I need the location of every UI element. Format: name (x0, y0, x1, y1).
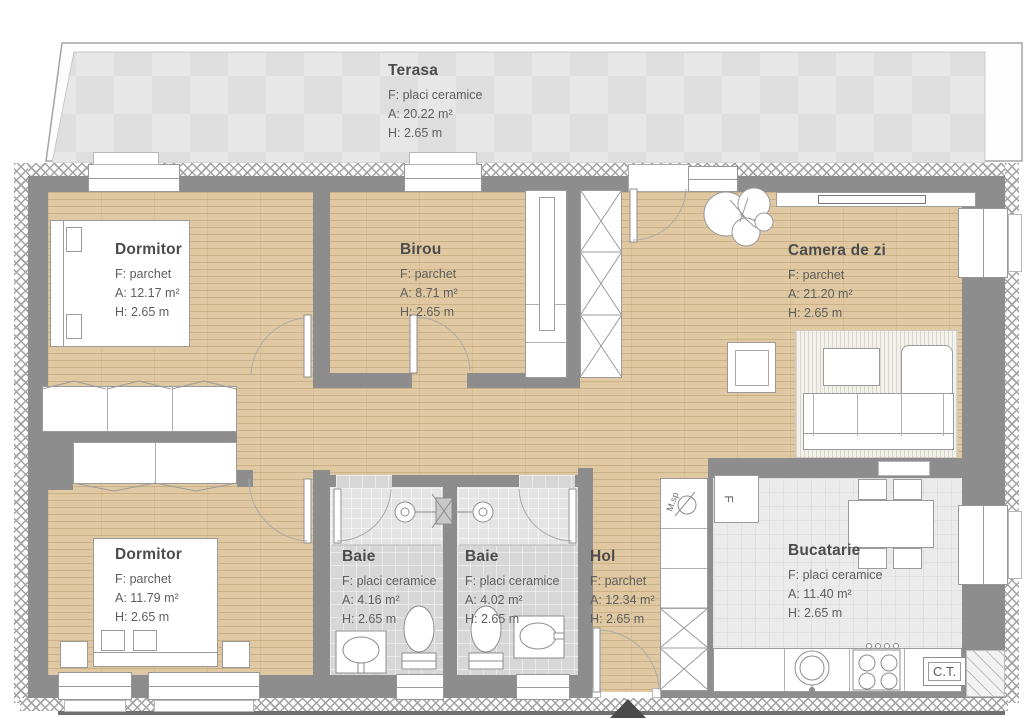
label-dormitor-2: Dormitor F: parchet A: 11.79 m² H: 2.65 … (115, 546, 182, 627)
room-name: Hol (590, 548, 655, 566)
door-entrance (593, 628, 659, 692)
label-camera-de-zi: Camera de zi F: parchet A: 21.20 m² H: 2… (788, 242, 886, 323)
boiler-label: C.T. (928, 662, 961, 681)
room-height: H: 2.65 m (388, 124, 482, 143)
room-name: Dormitor (115, 241, 182, 259)
label-birou: Birou F: parchet A: 8.71 m² H: 2.65 m (400, 241, 458, 322)
room-floor: F: parchet (115, 265, 182, 284)
door-baie1 (334, 489, 391, 543)
room-area: A: 11.79 m² (115, 589, 182, 608)
room-area: A: 21.20 m² (788, 285, 886, 304)
label-terasa: Terasa F: placi ceramice A: 20.22 m² H: … (388, 62, 482, 143)
room-floor: F: parchet (115, 570, 182, 589)
label-dormitor-1: Dormitor F: parchet A: 12.17 m² H: 2.65 … (115, 241, 182, 322)
room-height: H: 2.65 m (788, 604, 882, 623)
floor-plan: F C.T. (0, 0, 1028, 718)
kitchen-sink-icon (795, 651, 829, 693)
room-floor: F: parchet (788, 266, 886, 285)
sink-baie1-icon (336, 631, 386, 673)
room-area: A: 20.22 m² (388, 105, 482, 124)
room-height: H: 2.65 m (115, 303, 182, 322)
door-birou (410, 315, 470, 373)
door-baie2 (519, 489, 576, 543)
label-bucatarie: Bucatarie F: placi ceramice A: 11.40 m² … (788, 542, 882, 623)
room-area: A: 4.16 m² (342, 591, 436, 610)
plant-icon (704, 188, 773, 246)
stove-icon (853, 644, 900, 691)
room-floor: F: parchet (590, 572, 655, 591)
shower-fixture-icon (395, 494, 493, 528)
room-name: Baie (465, 548, 559, 566)
room-floor: F: placi ceramice (388, 86, 482, 105)
room-floor: F: placi ceramice (465, 572, 559, 591)
hall-wardrobe-x-icon (580, 191, 622, 376)
room-name: Baie (342, 548, 436, 566)
room-area: A: 8.71 m² (400, 284, 458, 303)
room-height: H: 2.65 m (465, 610, 559, 629)
room-floor: F: parchet (400, 265, 458, 284)
entrance-arrow-icon (610, 699, 646, 718)
room-area: A: 4.02 m² (465, 591, 559, 610)
room-name: Camera de zi (788, 242, 886, 260)
room-height: H: 2.65 m (342, 610, 436, 629)
label-hol: Hol F: parchet A: 12.34 m² H: 2.65 m (590, 548, 655, 629)
room-height: H: 2.65 m (590, 610, 655, 629)
room-floor: F: placi ceramice (342, 572, 436, 591)
fridge-label: F (722, 495, 736, 502)
boiler-box: C.T. (923, 657, 966, 686)
room-height: H: 2.65 m (400, 303, 458, 322)
room-height: H: 2.65 m (115, 608, 182, 627)
room-floor: F: placi ceramice (788, 566, 882, 585)
room-name: Terasa (388, 62, 482, 80)
door-bedroom2 (249, 479, 311, 543)
room-name: Dormitor (115, 546, 182, 564)
room-name: Bucatarie (788, 542, 882, 560)
hol-cabinet-x-icon (661, 608, 707, 689)
label-baie-1: Baie F: placi ceramice A: 4.16 m² H: 2.6… (342, 548, 436, 629)
wardrobe2-sliding-marks (73, 483, 237, 491)
door-terrace (630, 189, 686, 242)
door-bedroom1 (251, 315, 311, 377)
room-area: A: 12.34 m² (590, 591, 655, 610)
room-area: A: 12.17 m² (115, 284, 182, 303)
room-name: Birou (400, 241, 458, 259)
room-height: H: 2.65 m (788, 304, 886, 323)
washing-machine-icon: M.sp (664, 491, 696, 516)
wardrobe1-sliding-marks (42, 381, 236, 389)
label-baie-2: Baie F: placi ceramice A: 4.02 m² H: 2.6… (465, 548, 559, 629)
room-area: A: 11.40 m² (788, 585, 882, 604)
